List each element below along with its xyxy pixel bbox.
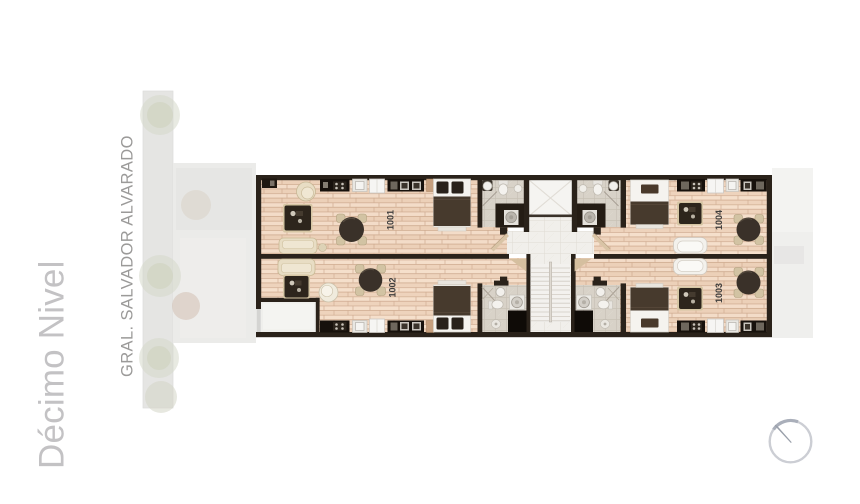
svg-text:1003: 1003 [714, 283, 724, 303]
svg-text:Décimo Nivel: Décimo Nivel [33, 260, 72, 469]
svg-text:1001: 1001 [386, 210, 396, 230]
svg-text:1004: 1004 [714, 210, 724, 230]
svg-text:1002: 1002 [388, 277, 398, 297]
svg-text:GRAL. SALVADOR ALVARADO: GRAL. SALVADOR ALVARADO [119, 135, 137, 377]
